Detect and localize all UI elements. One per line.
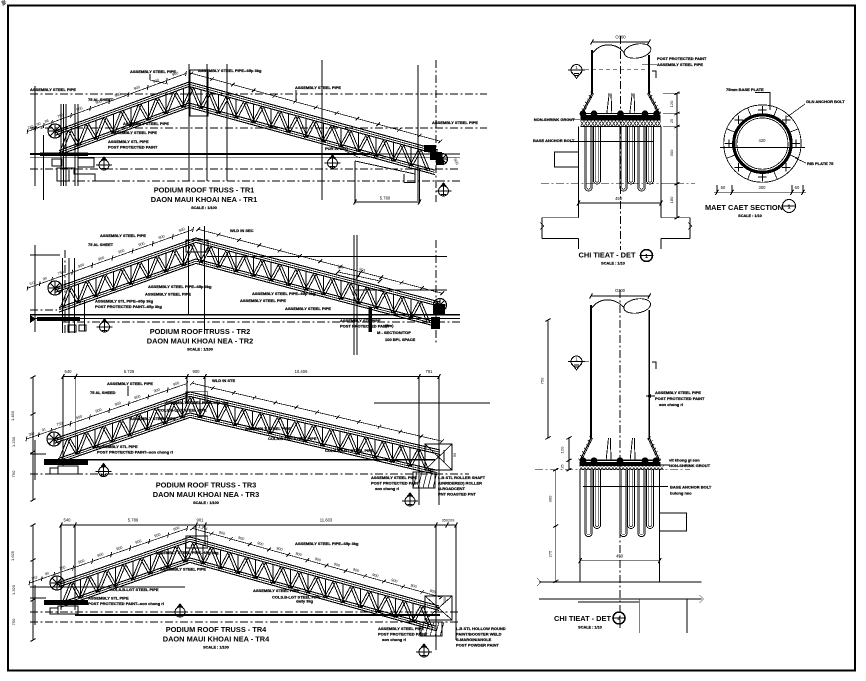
svg-text:ASSEMBLY STEEL PIPE: ASSEMBLY STEEL PIPE (655, 390, 701, 395)
svg-text:son chong ri: son chong ri (375, 486, 399, 491)
svg-text:DAON MAUI KHOAI NEA - TR1: DAON MAUI KHOAI NEA - TR1 (151, 195, 257, 204)
svg-text:N-ROADCENT: N-ROADCENT (438, 486, 465, 491)
svg-text:(6m): (6m) (385, 323, 394, 328)
svg-text:180: 180 (669, 196, 674, 203)
svg-text:CHI TIEAT - DET: CHI TIEAT - DET (579, 251, 636, 260)
svg-text:900: 900 (193, 369, 201, 374)
svg-text:ASSEMBLY STEEL PIPE: ASSEMBLY STEEL PIPE (245, 426, 291, 431)
svg-text:POST PROTECTED PAINT: POST PROTECTED PAINT (657, 56, 707, 61)
svg-text:ASSEMBLY STEEL PIPE--65p 3kg: ASSEMBLY STEEL PIPE--65p 3kg (295, 541, 359, 546)
svg-text:10.406: 10.406 (295, 369, 308, 374)
svg-text:O300: O300 (615, 35, 626, 40)
svg-text:1: 1 (645, 254, 648, 260)
svg-text:ASSEMBLY STEEL PIPE: ASSEMBLY STEEL PIPE (160, 567, 206, 572)
svg-text:L.B STL ROLLER SHAFT: L.B STL ROLLER SHAFT (438, 475, 486, 480)
svg-text:ASSEMBLY STEEL PIPE--65p 3kg: ASSEMBLY STEEL PIPE--65p 3kg (165, 400, 229, 405)
svg-text:ASSEMBLY STEEL PIPE: ASSEMBLY STEEL PIPE (107, 381, 153, 386)
svg-text:(UNRIDERED) ROLLER: (UNRIDERED) ROLLER (438, 481, 482, 486)
svg-text:COLS.B-LGT STEEL PIPE: COLS.B-LGT STEEL PIPE (110, 587, 159, 592)
svg-text:SCALE : 1/100: SCALE : 1/100 (193, 501, 219, 505)
svg-text:ASSEMBLY STL PIPE: ASSEMBLY STL PIPE (340, 318, 381, 323)
svg-text:ASSEMBLY STEEL PIPE: ASSEMBLY STEEL PIPE (378, 626, 424, 631)
svg-text:POST PROTECTED PAINT--65p 3kg: POST PROTECTED PAINT--65p 3kg (95, 304, 162, 309)
svg-text:25: 25 (561, 465, 565, 469)
svg-text:POST POWDER PAINT: POST POWDER PAINT (456, 643, 499, 648)
svg-text:750: 750 (11, 618, 16, 625)
svg-text:60: 60 (721, 185, 726, 190)
svg-text:300: 300 (759, 185, 767, 190)
svg-text:daily 3kg: daily 3kg (296, 599, 314, 604)
svg-text:DAON MAUI KHOAI NEA - TR2: DAON MAUI KHOAI NEA - TR2 (147, 337, 253, 346)
svg-text:POST PROTECTED PAINT: POST PROTECTED PAINT (108, 145, 158, 150)
svg-text:750: 750 (540, 377, 545, 384)
svg-text:1.320: 1.320 (11, 584, 16, 595)
svg-text:ASSEMBLY STEEL PIPE: ASSEMBLY STEEL PIPE (240, 298, 286, 303)
svg-text:WLD IN SEC: WLD IN SEC (230, 228, 254, 233)
svg-text:vit khong gi son: vit khong gi son (669, 458, 700, 463)
svg-text:ASSEMBLY STEEL PIPE: ASSEMBLY STEEL PIPE (145, 292, 191, 297)
svg-text:POST PROTECTED PAINT--son chon: POST PROTECTED PAINT--son chong ri (88, 601, 164, 606)
svg-text:ASSEMBLY STEEL PIPE: ASSEMBLY STEEL PIPE (657, 62, 703, 67)
svg-text:300: 300 (669, 149, 674, 156)
svg-text:son chong ri: son chong ri (659, 402, 683, 407)
svg-text:SCALE : 1/100: SCALE : 1/100 (191, 206, 217, 210)
svg-text:750: 750 (11, 470, 16, 477)
svg-text:120: 120 (560, 446, 565, 453)
svg-text:SCALE : 1/10: SCALE : 1/10 (738, 214, 762, 218)
svg-text:75 AL SHEET: 75 AL SHEET (88, 97, 114, 102)
svg-text:CHI TIEAT - DET: CHI TIEAT - DET (554, 614, 611, 623)
svg-text:COLS.B-LGT STEEL PIPE: COLS.B-LGT STEEL PIPE (158, 408, 207, 413)
svg-text:5.760: 5.760 (380, 196, 391, 201)
svg-text:ASSEMBLY STEEL PIPE: ASSEMBLY STEEL PIPE (130, 69, 176, 74)
svg-text:L.B STL HOLLOW ROUND: L.B STL HOLLOW ROUND (456, 626, 506, 631)
svg-text:ASSEMBLY STEEL PIPE: ASSEMBLY STEEL PIPE (371, 475, 417, 480)
svg-text:450: 450 (616, 554, 624, 559)
svg-text:ASSEMBLY STEEL PIPE: ASSEMBLY STEEL PIPE (432, 120, 478, 125)
svg-text:ASSEMBLY STEEL PIPE--65p 3kg: ASSEMBLY STEEL PIPE--65p 3kg (148, 284, 212, 289)
svg-text:ASSEMBLY STEEL PIPE: ASSEMBLY STEEL PIPE (123, 121, 169, 126)
svg-text:ASSEMBLY STEEL PIPE--65p 3kg: ASSEMBLY STEEL PIPE--65p 3kg (155, 550, 219, 555)
svg-text:POST PROTECTED PAINT: POST PROTECTED PAINT (371, 481, 421, 486)
svg-text:POST PROTECTED PAINT: POST PROTECTED PAINT (340, 324, 390, 329)
svg-text:MAET CAET SECTION: MAET CAET SECTION (705, 203, 783, 212)
svg-text:5.729: 5.729 (124, 369, 135, 374)
svg-text:1.450: 1.450 (10, 410, 15, 421)
svg-text:PAINT/BOOSTER WELD: PAINT/BOOSTER WELD (456, 632, 502, 637)
svg-text:PUR IN SEC: PUR IN SEC (325, 146, 348, 151)
svg-text:75mm BASE PLATE: 75mm BASE PLATE (726, 87, 764, 92)
svg-text:1.625: 1.625 (10, 550, 15, 561)
svg-text:75 AL SHEED: 75 AL SHEED (90, 390, 116, 395)
svg-text:ASSEMBLY STEEL PIPE: ASSEMBLY STEEL PIPE (130, 416, 176, 421)
svg-text:ASSEMBLY STEEL PIPE: ASSEMBLY STEEL PIPE (253, 588, 299, 593)
svg-text:300: 300 (548, 495, 553, 502)
svg-text:PODIUM ROOF TRUSS - TR1: PODIUM ROOF TRUSS - TR1 (154, 186, 255, 195)
svg-text:ASSEMBLY STEEL PIPE--65p 3kg: ASSEMBLY STEEL PIPE--65p 3kg (252, 291, 316, 296)
svg-text:11.603: 11.603 (320, 518, 333, 523)
svg-text:25: 25 (670, 119, 674, 123)
svg-text:ASSEMBLY STEEL PIPE: ASSEMBLY STEEL PIPE (100, 233, 146, 238)
svg-text:NON-SHRINK GROUT: NON-SHRINK GROUT (669, 463, 711, 468)
svg-text:POST PROTECTED PAINT--son chon: POST PROTECTED PAINT--son chong ri (97, 449, 173, 454)
svg-text:COLS.B-LGT STEEL PIPE: COLS.B-LGT STEEL PIPE (325, 448, 374, 453)
svg-text:540: 540 (64, 518, 72, 523)
svg-text:son chong ri: son chong ri (382, 637, 406, 642)
svg-text:275: 275 (548, 550, 553, 557)
svg-text:SCALE : 1/10: SCALE : 1/10 (601, 262, 625, 266)
svg-text:ASSEMBLY STEEL PIPE: ASSEMBLY STEEL PIPE (30, 87, 76, 92)
svg-text:RIB PLATE 75: RIB PLATE 75 (807, 161, 834, 166)
svg-text:791: 791 (426, 369, 434, 374)
svg-text:450: 450 (615, 196, 623, 201)
svg-text:60: 60 (795, 185, 800, 190)
svg-text:DAON MAUI KHOAI NEA - TR3: DAON MAUI KHOAI NEA - TR3 (153, 490, 259, 499)
svg-text:O300: O300 (615, 288, 626, 293)
svg-text:BASE ANCHOR BOLT: BASE ANCHOR BOLT (670, 485, 712, 490)
svg-text:ASSEMBLY STL PIPE: ASSEMBLY STL PIPE (108, 139, 149, 144)
svg-text:bulong neo: bulong neo (670, 491, 692, 496)
svg-text:PODIUM ROOF TRUSS - TR3: PODIUM ROOF TRUSS - TR3 (156, 481, 257, 490)
svg-text:5.789: 5.789 (128, 518, 139, 523)
svg-text:ASSEMBLY STL PIPE--65p 3kg: ASSEMBLY STL PIPE--65p 3kg (95, 299, 154, 304)
svg-text:PNT ROASTED PNT: PNT ROASTED PNT (438, 492, 476, 497)
svg-text:90: 90 (453, 453, 457, 457)
svg-text:1: 1 (787, 205, 790, 211)
svg-text:ASSEMBLY STEEL PIPE--65p 3kg: ASSEMBLY STEEL PIPE--65p 3kg (198, 68, 262, 73)
svg-text:ASSEMBLY STEEL PIPE: ASSEMBLY STEEL PIPE (285, 306, 331, 311)
svg-text:M - SECTION/TOP: M - SECTION/TOP (377, 330, 411, 335)
svg-text:PODIUM ROOF TRUSS - TR4: PODIUM ROOF TRUSS - TR4 (166, 625, 267, 634)
svg-text:ASSEMBLY STEEL PIPE: ASSEMBLY STEEL PIPE (295, 85, 341, 90)
svg-text:SCALE : 1/100: SCALE : 1/100 (203, 646, 229, 650)
svg-text:POST PROTECTED PAINT: POST PROTECTED PAINT (378, 632, 428, 637)
svg-text:ASSEMBLY STEEL PIPE: ASSEMBLY STEEL PIPE (111, 130, 157, 135)
svg-text:350209: 350209 (442, 519, 455, 523)
svg-text:75 AL SHEET: 75 AL SHEET (88, 242, 114, 247)
svg-text:120: 120 (669, 100, 674, 107)
svg-text:POST PROTECTED PAINT: POST PROTECTED PAINT (655, 396, 705, 401)
svg-text:ASSEMBLY STL PIPE: ASSEMBLY STL PIPE (88, 596, 129, 601)
svg-text:WLD IN STE: WLD IN STE (212, 378, 235, 383)
svg-text:GLN ANCHOR BOLT: GLN ANCHOR BOLT (806, 99, 845, 104)
svg-text:ASSEMBLY STL PIPE: ASSEMBLY STL PIPE (97, 444, 138, 449)
svg-text:420: 420 (759, 138, 767, 143)
svg-text:SCALE : 1/100: SCALE : 1/100 (187, 348, 213, 352)
svg-text:S-MARGIN/ANGLE: S-MARGIN/ANGLE (456, 637, 492, 642)
svg-text:901: 901 (197, 518, 205, 523)
svg-text:900: 900 (443, 597, 447, 603)
svg-text:1.230: 1.230 (11, 436, 16, 447)
svg-text:PODIUM ROOF TRUSS - TR2: PODIUM ROOF TRUSS - TR2 (150, 327, 251, 336)
svg-text:COLS.B-LGT STEEL PIPE: COLS.B-LGT STEEL PIPE (268, 436, 317, 441)
svg-text:SCALE : 1/10: SCALE : 1/10 (578, 626, 602, 630)
svg-text:BASE ANCHOR BOLT: BASE ANCHOR BOLT (533, 138, 575, 143)
svg-text:DAON MAUI KHOAI NEA - TR4: DAON MAUI KHOAI NEA - TR4 (163, 635, 270, 644)
svg-text:100 BPL SPACE: 100 BPL SPACE (385, 337, 416, 342)
svg-text:540: 540 (65, 369, 73, 374)
